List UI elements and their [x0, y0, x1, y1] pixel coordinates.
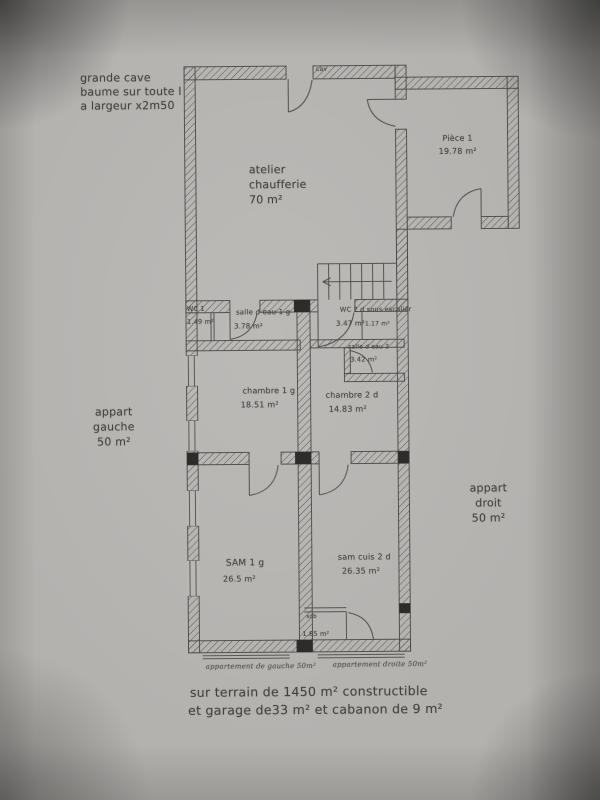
- floorplan-photo: grande cave baume sur toute l a largeur …: [0, 0, 600, 800]
- atelier-name-line1: atelier: [249, 162, 307, 177]
- sam-cuis-2-area: 26.35 m²: [342, 566, 380, 575]
- sam1-name: SAM 1 g: [226, 558, 264, 568]
- chambre2-name: chambre 2 d: [326, 390, 379, 399]
- chambre2-area: 14.83 m²: [329, 404, 367, 413]
- sam1-area: 26.5 m²: [223, 574, 256, 583]
- caption-appartement-gauche: appartement de gauche 50m²: [206, 662, 316, 671]
- partition-lines: [211, 312, 365, 641]
- stairs: [318, 263, 397, 300]
- room-label-atelier: atelier chaufferie 70 m²: [249, 162, 307, 207]
- sdb-name: sdb: [306, 614, 316, 620]
- cav-marker: cav: [316, 66, 327, 73]
- chambre1-name: chambre 1 g: [243, 386, 296, 395]
- appart-gauche-line1: appart: [79, 404, 149, 420]
- appart-gauche-line3: 50 m²: [79, 434, 149, 450]
- wc1-area: 1.49 m²: [187, 318, 214, 326]
- cave-note-line2: baume sur toute l: [80, 85, 182, 100]
- floorplan-drawing: [0, 0, 600, 800]
- placard-area: 1.17 m²: [365, 320, 390, 327]
- piece1-name: Pièce 1: [427, 132, 489, 145]
- terrain-note-line1: sur terrain de 1450 m² constructible: [190, 683, 428, 700]
- cave-note: grande cave baume sur toute l a largeur …: [80, 71, 182, 114]
- salle-eau-1-name: salle d eau 1 g: [236, 308, 290, 316]
- wc1-name: WC 1: [187, 305, 205, 313]
- piece1-area: 19.78 m²: [427, 145, 489, 158]
- appart-droit-line3: 50 m²: [454, 510, 524, 526]
- appart-droit-line1: appart: [453, 480, 523, 496]
- windows: [185, 354, 404, 659]
- appart-gauche-note: appart gauche 50 m²: [79, 404, 149, 450]
- appart-droit-note: appart droit 50 m²: [453, 480, 523, 526]
- wc2-name: WC 2 d sous escalier: [340, 305, 412, 314]
- salle-eau-2-area: 3.42 m²: [350, 355, 377, 363]
- room-label-piece1: Pièce 1 19.78 m²: [427, 132, 489, 158]
- cave-note-line3: a largeur x2m50: [80, 99, 182, 114]
- wc2-area: 3.47 m²: [336, 319, 365, 327]
- sam-cuis-2-name: sam cuis 2 d: [338, 552, 391, 561]
- atelier-area: 70 m²: [249, 192, 307, 207]
- cave-note-line1: grande cave: [80, 71, 182, 86]
- appart-droit-line2: droit: [453, 495, 523, 511]
- chambre1-area: 18.51 m²: [241, 400, 279, 409]
- appart-gauche-line2: gauche: [79, 419, 149, 435]
- paper-content: grande cave baume sur toute l a largeur …: [0, 0, 600, 800]
- terrain-note-line2: et garage de33 m² et cabanon de 9 m²: [188, 701, 443, 718]
- sdb-area: 1.85 m²: [302, 630, 329, 638]
- salle-eau-2-name: salle d eau 2: [348, 343, 389, 350]
- atelier-name-line2: chaufferie: [249, 177, 307, 192]
- caption-appartement-droite: appartement droite 50m²: [333, 660, 427, 669]
- salle-eau-1-area: 3.78 m²: [234, 322, 263, 330]
